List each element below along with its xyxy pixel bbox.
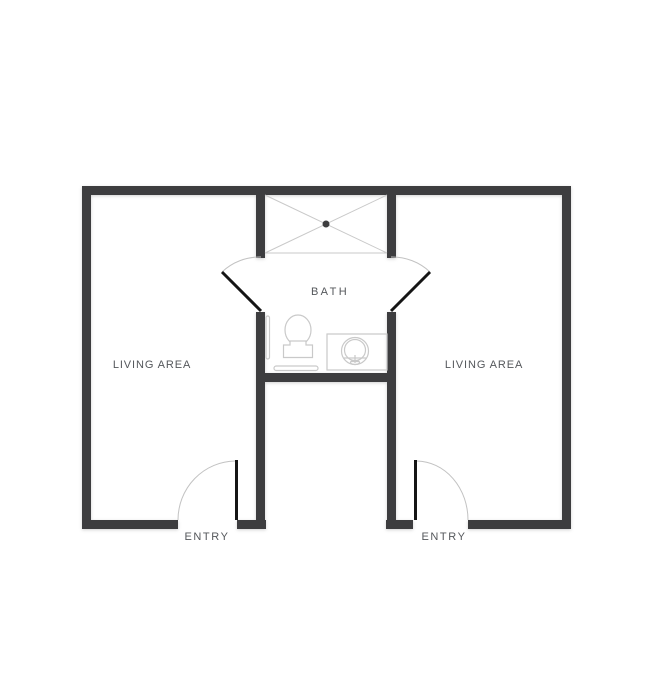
wall-bottom-left [82,520,178,529]
label-entry-left: ENTRY [184,531,229,543]
wall-shower-left [256,195,265,258]
floor-plan: LIVING AREA LIVING AREA BATH ENTRY ENTRY [0,0,650,700]
wall-bath-bottom [256,373,396,382]
wall-left [82,186,91,529]
floor-plan-background [0,0,650,700]
wall-shower-right [387,195,396,258]
wall-right [562,186,571,529]
wall-bath-partition-right [387,312,396,529]
wall-bottom-right [468,520,571,529]
shower-drain-icon [323,221,330,228]
label-entry-right: ENTRY [421,531,466,543]
label-living-area-left: LIVING AREA [113,359,191,371]
label-bath: BATH [311,286,349,298]
label-living-area-right: LIVING AREA [445,359,523,371]
wall-bath-partition-left [256,312,265,529]
wall-top [82,186,571,195]
